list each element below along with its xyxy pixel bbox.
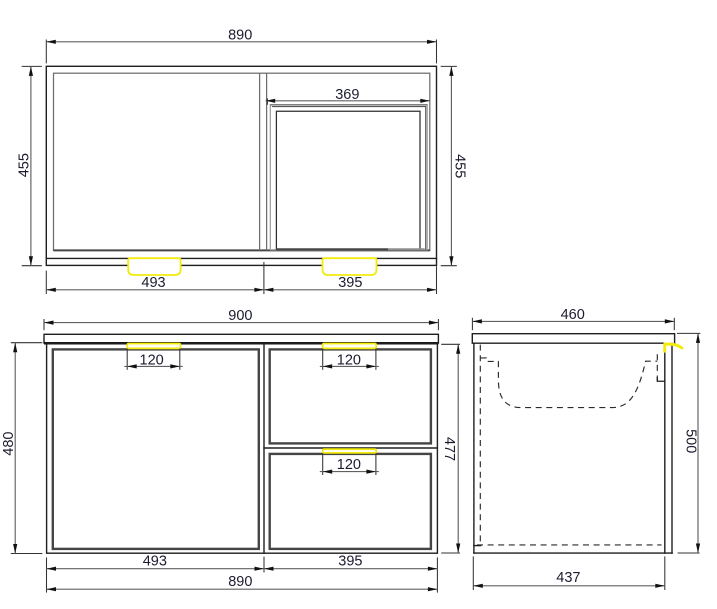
svg-text:369: 369: [335, 86, 359, 103]
svg-text:120: 120: [337, 456, 361, 473]
svg-text:460: 460: [561, 306, 585, 323]
svg-text:120: 120: [337, 352, 361, 369]
svg-text:480: 480: [0, 432, 17, 456]
svg-text:500: 500: [682, 429, 699, 453]
svg-text:890: 890: [228, 26, 252, 43]
svg-text:455: 455: [452, 154, 469, 178]
svg-text:477: 477: [441, 437, 458, 461]
svg-text:890: 890: [228, 573, 252, 590]
svg-text:493: 493: [141, 274, 165, 291]
svg-text:455: 455: [15, 153, 32, 177]
svg-text:900: 900: [228, 307, 252, 324]
svg-text:493: 493: [143, 553, 167, 570]
svg-text:395: 395: [338, 553, 362, 570]
svg-text:395: 395: [338, 274, 362, 291]
svg-text:437: 437: [556, 569, 580, 586]
svg-text:120: 120: [140, 352, 164, 369]
